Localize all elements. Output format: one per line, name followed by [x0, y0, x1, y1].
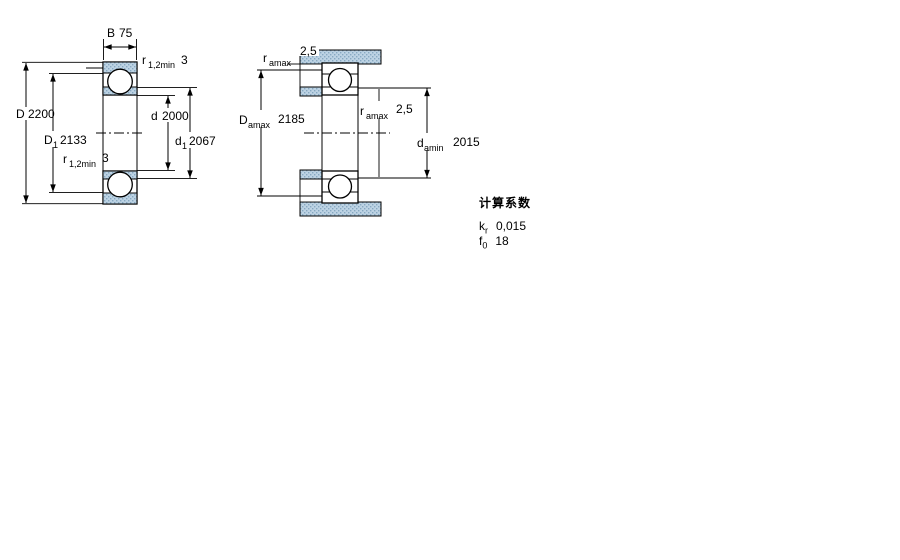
- calculation-factors-title: 计算系数: [479, 194, 531, 211]
- housing-recess-top: [300, 64, 322, 87]
- technical-drawing-page: B 75 r 1,2min 3 D 2200 D 1 2133 r 1,2min…: [0, 0, 900, 560]
- dim-d1-value: 2067: [189, 134, 216, 148]
- dim-D1-symbol: D: [44, 133, 53, 147]
- factor-kr-value: 0,015: [496, 219, 526, 233]
- dim-r-top-symbol: r: [142, 53, 146, 67]
- factor-f0-sub: 0: [482, 240, 487, 250]
- dim-ra-top-sub: amax: [269, 58, 292, 68]
- bearing-section-bottom: [103, 171, 137, 204]
- factor-f0-value: 18: [495, 234, 508, 248]
- dim-D1-value: 2133: [60, 133, 87, 147]
- mounted-bearing-section-top: [322, 63, 358, 95]
- dim-d-symbol: d: [151, 109, 158, 123]
- dim-r-top-value: 3: [181, 53, 188, 67]
- mounted-ball-top: [329, 69, 352, 92]
- dim-da-symbol: d: [417, 136, 424, 150]
- dim-d1-sub: 1: [182, 141, 187, 151]
- factor-kr-row: kr0,015: [479, 219, 526, 233]
- shoulder-block-bottom: [300, 170, 322, 179]
- dim-D-symbol: D: [16, 107, 25, 121]
- dim-B-value: 75: [119, 26, 133, 40]
- ball-bottom: [108, 172, 133, 197]
- dim-D1-sub: 1: [53, 140, 58, 150]
- bearing-cross-section-diagram: B 75 r 1,2min 3 D 2200 D 1 2133 r 1,2min…: [14, 26, 221, 204]
- dim-B-symbol: B: [107, 26, 115, 40]
- dim-r-bottom-value: 3: [102, 151, 109, 165]
- factor-f0-row: f018: [479, 234, 509, 248]
- dim-r-top-sub: 1,2min: [148, 60, 175, 70]
- dim-D-value: 2200: [28, 107, 55, 121]
- dim-da-value: 2015: [453, 135, 480, 149]
- dim-Da-sub: amax: [248, 120, 271, 130]
- calculation-factors-block: 计算系数 kr0,015 f018: [479, 194, 531, 211]
- housing-bottom-bar: [300, 202, 381, 216]
- dim-d-value: 2000: [162, 109, 189, 123]
- mounted-bearing-section-bottom: [322, 171, 358, 203]
- dim-Da-symbol: D: [239, 113, 248, 127]
- bearing-drawings: B 75 r 1,2min 3 D 2200 D 1 2133 r 1,2min…: [0, 0, 900, 560]
- housing-recess-bottom: [300, 179, 322, 202]
- bearing-section-top: [103, 62, 137, 95]
- dim-r-bottom-symbol: r: [63, 152, 67, 166]
- dim-ra-mid-value: 2,5: [396, 102, 413, 116]
- shoulder-block-top: [300, 87, 322, 96]
- dim-ra-top-symbol: r: [263, 51, 267, 65]
- bearing-mounting-diagram: r amax 2,5 D amax 2185 r amax 2,5 d amin…: [237, 43, 480, 216]
- dim-ra-top-value: 2,5: [300, 44, 317, 58]
- dim-ra-mid-sub: amax: [366, 111, 389, 121]
- ball-top: [108, 69, 133, 94]
- mounted-ball-bottom: [329, 175, 352, 198]
- dim-ra-mid-symbol: r: [360, 104, 364, 118]
- dim-da-sub: amin: [424, 143, 444, 153]
- dim-d1-symbol: d: [175, 134, 182, 148]
- dim-Da-value: 2185: [278, 112, 305, 126]
- dim-r-bottom-sub: 1,2min: [69, 159, 96, 169]
